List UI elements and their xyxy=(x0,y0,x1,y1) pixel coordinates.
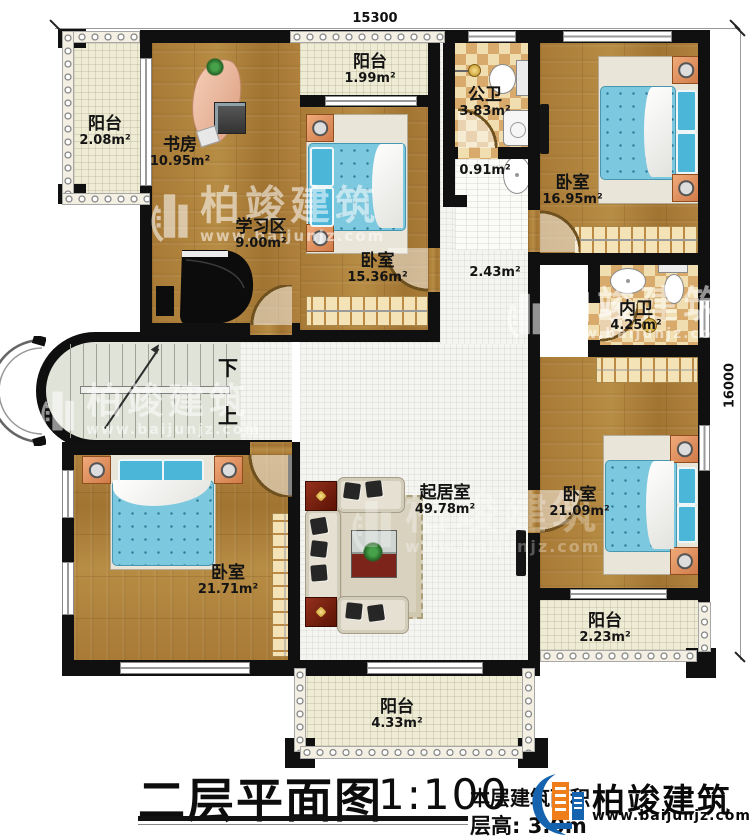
title-underline-thin xyxy=(138,824,468,825)
door-arc xyxy=(540,210,580,252)
nightstand xyxy=(670,435,699,463)
room-label-balcony-br: 阳台 2.23m² xyxy=(563,612,647,646)
room-label-public-bath: 公卫 3.83m² xyxy=(443,86,527,120)
room-label-bedroom-br: 卧室 21.09m² xyxy=(532,486,627,520)
wall xyxy=(588,345,710,357)
door-gap xyxy=(250,442,292,455)
window xyxy=(62,562,74,615)
cushion xyxy=(365,480,383,498)
dimension-line-right xyxy=(740,32,741,660)
stair-rail xyxy=(80,386,230,394)
window xyxy=(325,96,417,106)
side-table xyxy=(305,597,337,627)
room-label-balcony-top: 阳台 1.99m² xyxy=(330,53,410,87)
pillow xyxy=(677,467,697,505)
dimension-right-value: 16000 xyxy=(723,356,738,416)
dimension-top-value: 15300 xyxy=(330,11,420,26)
wall xyxy=(288,330,440,342)
room-label-corridor: 2.43m² xyxy=(455,266,535,281)
room-label-balcony-tl: 阳台 2.08m² xyxy=(65,115,145,149)
pillow xyxy=(310,187,334,227)
door-gap xyxy=(528,210,540,252)
sink xyxy=(610,268,646,294)
plan-scale: 1:100 xyxy=(378,770,509,819)
window xyxy=(367,662,483,674)
tv xyxy=(540,104,549,154)
floor-plan: 下 上 xyxy=(0,0,750,840)
toilet-tank xyxy=(658,264,688,273)
cushion xyxy=(310,540,328,558)
desk-plant xyxy=(206,58,224,76)
pillow xyxy=(676,90,697,132)
balcony-trim xyxy=(300,746,523,759)
door-gap xyxy=(428,248,440,292)
cushion xyxy=(367,604,385,622)
blanket-fold xyxy=(644,87,672,177)
dimension-line-top xyxy=(55,28,737,29)
wall xyxy=(443,195,467,207)
wardrobe xyxy=(306,296,428,326)
blanket-fold xyxy=(646,461,674,549)
window xyxy=(563,31,672,42)
stair-up-label: 上 xyxy=(218,400,238,429)
room-label-wash-nook: 0.91m² xyxy=(450,164,520,179)
blanket-fold xyxy=(372,144,403,228)
room-label-balcony-bottom: 阳台 4.33m² xyxy=(355,698,439,732)
wall xyxy=(528,253,710,265)
cushion xyxy=(343,482,361,500)
stair-down-label: 下 xyxy=(218,352,238,381)
window xyxy=(570,589,667,599)
tv xyxy=(516,530,526,576)
window xyxy=(62,470,74,518)
window xyxy=(468,31,516,42)
balcony-trim xyxy=(522,668,535,752)
side-table xyxy=(305,481,337,511)
floor-drain xyxy=(468,64,481,77)
cushion xyxy=(310,517,329,536)
balcony-trim xyxy=(294,668,306,752)
room-label-study-area: 学习区 9.00m² xyxy=(215,218,307,252)
door-arc xyxy=(250,285,292,325)
room-label-bedroom-mid: 卧室 15.36m² xyxy=(330,252,425,286)
balcony-trim xyxy=(698,602,711,652)
brand-url: www.baijunjz.com xyxy=(592,808,750,824)
nightstand xyxy=(306,114,334,142)
nightstand xyxy=(670,547,699,575)
grand-piano xyxy=(152,248,256,328)
door-arc xyxy=(248,455,292,497)
balcony-trim xyxy=(62,193,150,205)
window xyxy=(120,662,250,674)
balcony-trim xyxy=(540,650,697,662)
pillow xyxy=(677,505,697,543)
pillow xyxy=(676,132,697,174)
pillow xyxy=(310,147,334,187)
room-label-bedroom-bl: 卧室 21.71m² xyxy=(182,564,274,598)
wardrobe xyxy=(596,357,698,383)
balcony-trim xyxy=(290,31,445,43)
room-label-inner-bath: 内卫 4.25m² xyxy=(595,300,677,334)
nightstand xyxy=(214,456,243,484)
wall xyxy=(528,30,540,663)
room-label-study: 书房 10.95m² xyxy=(135,136,225,170)
brand-logo-icon xyxy=(528,770,590,838)
nightstand xyxy=(672,174,700,202)
window xyxy=(699,300,710,338)
cushion xyxy=(310,564,327,581)
computer-monitor xyxy=(214,102,246,134)
nightstand xyxy=(306,224,334,252)
nightstand xyxy=(672,56,700,84)
nightstand xyxy=(82,456,111,484)
table-plant xyxy=(363,542,383,562)
stair-landing xyxy=(240,342,292,440)
cushion xyxy=(345,602,363,620)
door-gap xyxy=(458,147,498,159)
room-label-bedroom-tr: 卧室 16.95m² xyxy=(525,174,620,208)
wardrobe xyxy=(574,226,698,254)
window xyxy=(699,425,710,471)
room-label-living: 起居室 49.78m² xyxy=(400,484,490,518)
